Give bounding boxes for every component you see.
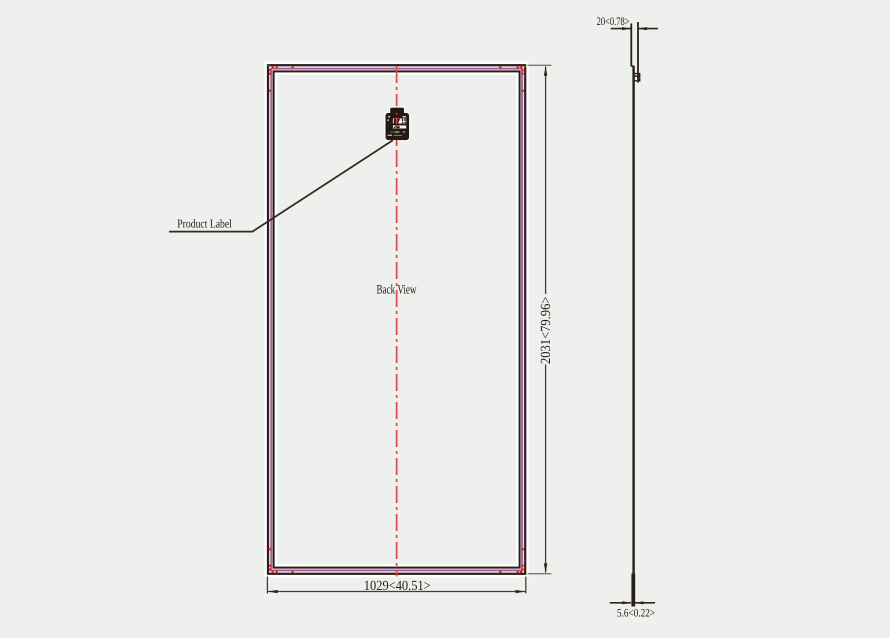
svg-text:2031<79.96>: 2031<79.96> [539,297,554,364]
svg-text:20<0.78>: 20<0.78> [597,16,630,28]
svg-text:5.6<0.22>: 5.6<0.22> [617,608,655,620]
svg-text:1029<40.51>: 1029<40.51> [364,579,431,594]
svg-text:Product Label: Product Label [177,217,232,231]
svg-text:Back View: Back View [377,281,417,296]
